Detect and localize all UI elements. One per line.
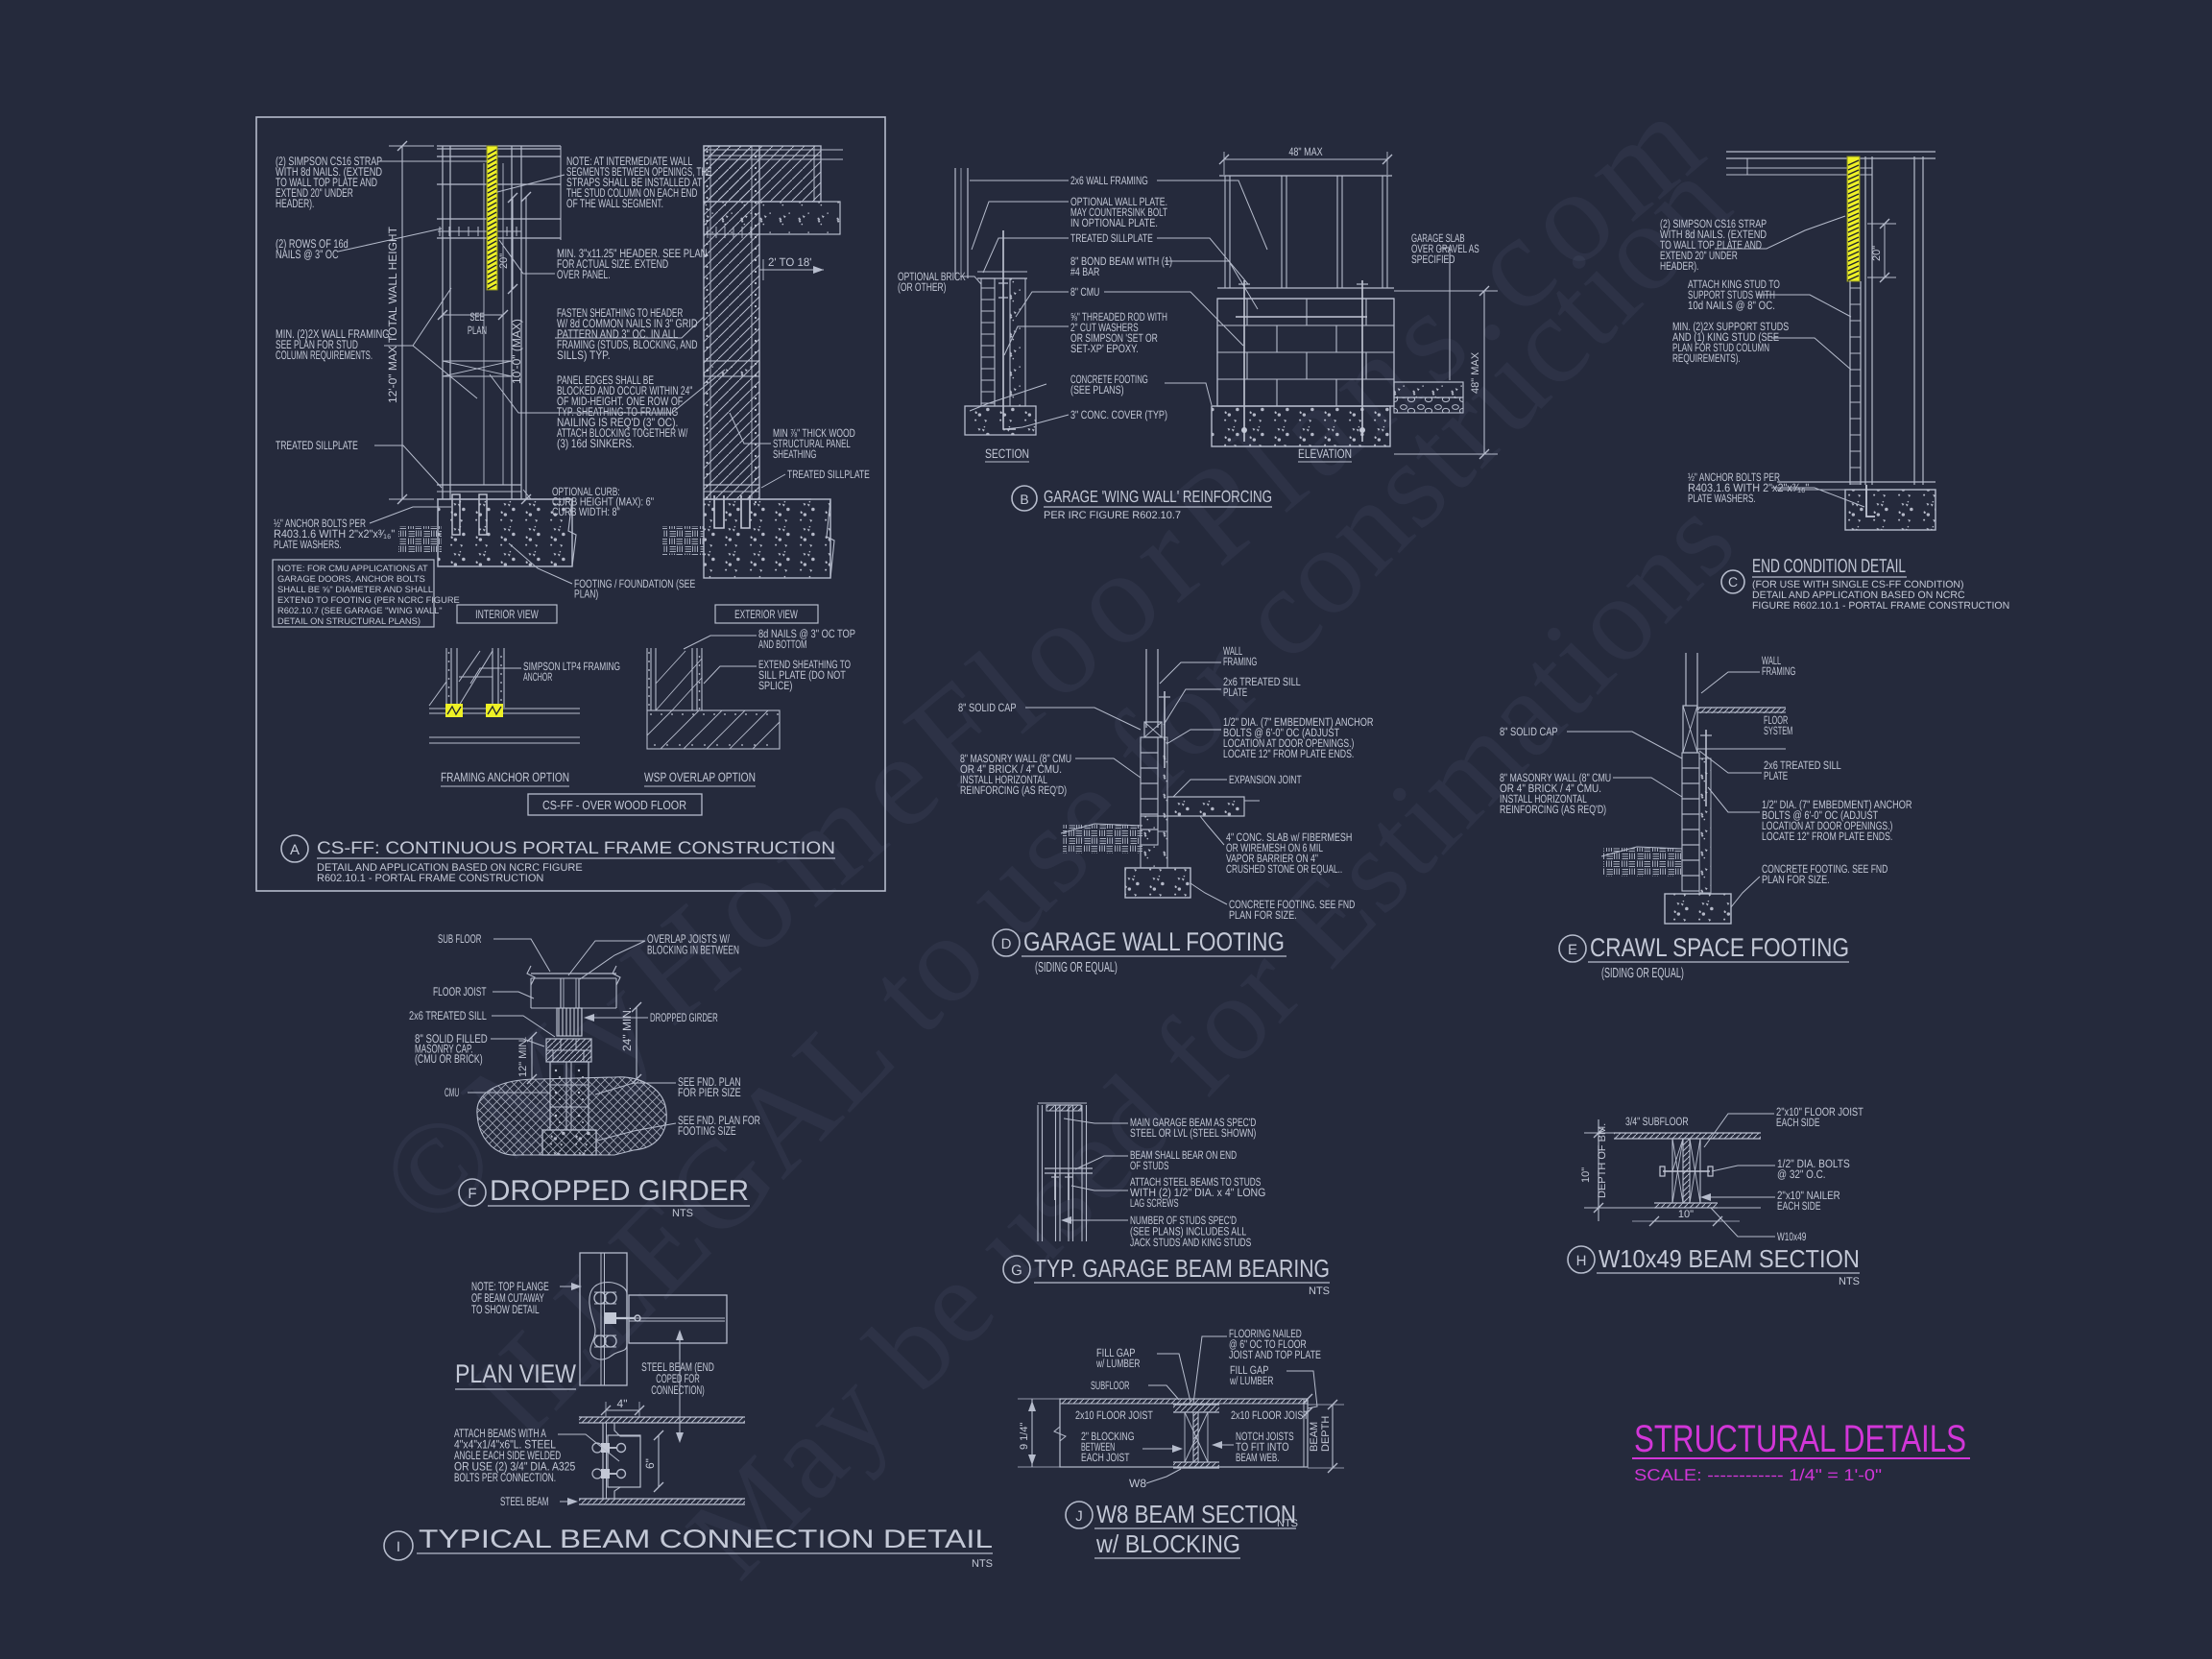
svg-text:TYPICAL BEAM CONNECTION DETAIL: TYPICAL BEAM CONNECTION DETAIL xyxy=(419,1525,993,1553)
svg-text:SEE: SEE xyxy=(469,310,484,324)
svg-text:NAILS @ 3" OC: NAILS @ 3" OC xyxy=(276,248,339,261)
svg-text:2' TO 18': 2' TO 18' xyxy=(768,255,811,269)
svg-text:BOLTS PER CONNECTION.: BOLTS PER CONNECTION. xyxy=(454,1471,556,1484)
svg-text:SPECIFIED: SPECIFIED xyxy=(1411,252,1455,266)
svg-text:BEAM: BEAM xyxy=(1309,1422,1320,1452)
svg-text:CURB WIDTH: 8": CURB WIDTH: 8" xyxy=(552,505,620,518)
svg-text:JACK STUDS AND KING STUDS: JACK STUDS AND KING STUDS xyxy=(1130,1236,1251,1249)
svg-text:PLATE WASHERS.: PLATE WASHERS. xyxy=(274,538,342,551)
svg-text:FRAMING: FRAMING xyxy=(1223,655,1257,668)
svg-text:PLAN FOR SIZE.: PLAN FOR SIZE. xyxy=(1762,873,1830,886)
svg-text:20": 20" xyxy=(498,253,510,269)
svg-text:NTS: NTS xyxy=(1309,1286,1330,1297)
svg-text:10": 10" xyxy=(1678,1209,1694,1220)
svg-text:CONNECTION): CONNECTION) xyxy=(651,1383,705,1397)
svg-text:SHALL BE ⅝" DIAMETER AND SHALL: SHALL BE ⅝" DIAMETER AND SHALL xyxy=(277,585,433,594)
svg-text:6": 6" xyxy=(643,1458,657,1469)
svg-text:PLAN: PLAN xyxy=(468,324,487,337)
svg-text:2x6 WALL FRAMING: 2x6 WALL FRAMING xyxy=(1070,174,1148,187)
svg-text:TREATED SILLPLATE: TREATED SILLPLATE xyxy=(787,468,870,481)
svg-text:TYP. GARAGE BEAM BEARING: TYP. GARAGE BEAM BEARING xyxy=(1034,1254,1330,1283)
svg-text:EXPANSION JOINT: EXPANSION JOINT xyxy=(1229,773,1302,786)
svg-text:SCALE: ------------ 1/4" = 1'-: SCALE: ------------ 1/4" = 1'-0" xyxy=(1634,1466,1882,1484)
svg-text:3/4" SUBFLOOR: 3/4" SUBFLOOR xyxy=(1625,1115,1689,1128)
svg-text:2x10 FLOOR JOIST: 2x10 FLOOR JOIST xyxy=(1075,1408,1153,1422)
svg-text:(OR OTHER): (OR OTHER) xyxy=(898,280,947,294)
svg-text:STEEL BEAM: STEEL BEAM xyxy=(500,1495,549,1508)
svg-text:D: D xyxy=(1001,936,1012,952)
svg-text:HEADER).: HEADER). xyxy=(276,197,314,210)
svg-text:REINFORCING (AS REQ'D): REINFORCING (AS REQ'D) xyxy=(960,783,1067,797)
svg-text:PLATE WASHERS.: PLATE WASHERS. xyxy=(1688,492,1756,505)
svg-text:12" MIN.: 12" MIN. xyxy=(517,1037,529,1077)
svg-text:10'-0" (MAX): 10'-0" (MAX) xyxy=(510,319,523,384)
svg-text:2x6 TREATED SILL: 2x6 TREATED SILL xyxy=(409,1009,487,1022)
svg-text:STEEL OR LVL (STEEL SHOWN): STEEL OR LVL (STEEL SHOWN) xyxy=(1130,1126,1256,1140)
svg-text:DEPTH OF BM.: DEPTH OF BM. xyxy=(1597,1123,1608,1198)
svg-text:SECTION: SECTION xyxy=(985,446,1029,461)
svg-text:CS-FF: CONTINUOUS PORTAL FRAME: CS-FF: CONTINUOUS PORTAL FRAME CONSTRUCT… xyxy=(317,838,835,857)
svg-text:DROPPED GIRDER: DROPPED GIRDER xyxy=(650,1011,718,1024)
svg-text:REINFORCING (AS REQ'D): REINFORCING (AS REQ'D) xyxy=(1500,803,1606,816)
svg-text:AND BOTTOM: AND BOTTOM xyxy=(758,637,807,651)
svg-text:SHEATHING: SHEATHING xyxy=(773,447,816,461)
svg-text:4": 4" xyxy=(617,1397,628,1410)
svg-text:10": 10" xyxy=(1580,1167,1592,1183)
svg-text:NTS: NTS xyxy=(1277,1518,1298,1529)
svg-text:8" SOLID CAP: 8" SOLID CAP xyxy=(1500,725,1558,738)
svg-text:COLUMN REQUIREMENTS.: COLUMN REQUIREMENTS. xyxy=(276,349,373,362)
svg-text:TREATED SILLPLATE: TREATED SILLPLATE xyxy=(1070,231,1153,245)
svg-text:GARAGE DOORS, ANCHOR BOLTS: GARAGE DOORS, ANCHOR BOLTS xyxy=(277,574,425,584)
svg-text:FOOTING SIZE: FOOTING SIZE xyxy=(678,1124,736,1138)
svg-text:OVER PANEL.: OVER PANEL. xyxy=(557,268,611,281)
svg-text:8" CMU: 8" CMU xyxy=(1070,285,1099,299)
svg-text:CRAWL SPACE FOOTING: CRAWL SPACE FOOTING xyxy=(1590,933,1849,962)
svg-text:CS-FF - OVER WOOD FLOOR: CS-FF - OVER WOOD FLOOR xyxy=(542,798,686,812)
svg-text:PLATE: PLATE xyxy=(1223,685,1247,699)
svg-text:w/ BLOCKING: w/ BLOCKING xyxy=(1095,1529,1240,1558)
svg-text:(SIDING OR EQUAL): (SIDING OR EQUAL) xyxy=(1601,966,1684,981)
svg-text:w/ LUMBER: w/ LUMBER xyxy=(1229,1374,1273,1387)
svg-text:BLOCKING IN BETWEEN: BLOCKING IN BETWEEN xyxy=(647,944,739,957)
svg-text:EXTEND TO FOOTING (PER NCRC FI: EXTEND TO FOOTING (PER NCRC FIGURE xyxy=(277,595,460,605)
svg-text:OF STUDS: OF STUDS xyxy=(1130,1159,1168,1172)
svg-text:#4 BAR: #4 BAR xyxy=(1070,265,1100,278)
svg-text:TO SHOW DETAIL: TO SHOW DETAIL xyxy=(471,1303,540,1316)
svg-text:48" MAX: 48" MAX xyxy=(1470,351,1481,394)
svg-text:H: H xyxy=(1576,1253,1587,1269)
svg-text:IN OPTIONAL PLATE.: IN OPTIONAL PLATE. xyxy=(1070,216,1158,229)
svg-text:FIGURE R602.10.1 - PORTAL FRAM: FIGURE R602.10.1 - PORTAL FRAME CONSTRUC… xyxy=(1752,600,2009,612)
svg-text:48" MAX: 48" MAX xyxy=(1288,145,1322,158)
svg-text:END CONDITION DETAIL: END CONDITION DETAIL xyxy=(1752,556,1906,577)
svg-text:12'-0" MAX TOTAL WALL HEIGHT: 12'-0" MAX TOTAL WALL HEIGHT xyxy=(386,226,399,403)
svg-text:NTS: NTS xyxy=(1839,1276,1860,1287)
svg-text:LOCATE 12" FROM PLATE ENDS.: LOCATE 12" FROM PLATE ENDS. xyxy=(1762,829,1892,843)
svg-text:PLAN FOR SIZE.: PLAN FOR SIZE. xyxy=(1229,908,1297,922)
svg-text:NOTE: FOR CMU APPLICATIONS AT: NOTE: FOR CMU APPLICATIONS AT xyxy=(277,564,428,573)
svg-text:ELEVATION: ELEVATION xyxy=(1298,446,1352,461)
svg-text:FOR PIER SIZE: FOR PIER SIZE xyxy=(678,1086,741,1099)
svg-text:w/ LUMBER: w/ LUMBER xyxy=(1095,1357,1140,1370)
svg-text:DEPTH: DEPTH xyxy=(1320,1416,1332,1452)
svg-text:SPLICE): SPLICE) xyxy=(758,679,792,692)
svg-text:SUBFLOOR: SUBFLOOR xyxy=(1091,1379,1130,1392)
svg-text:(SIDING OR EQUAL): (SIDING OR EQUAL) xyxy=(1035,960,1118,975)
svg-text:STRUCTURAL DETAILS: STRUCTURAL DETAILS xyxy=(1634,1418,1966,1460)
svg-text:W8: W8 xyxy=(1129,1477,1146,1490)
svg-text:W10x49: W10x49 xyxy=(1777,1230,1807,1243)
svg-text:20": 20" xyxy=(1871,246,1883,261)
svg-text:CRUSHED STONE OR EQUAL..: CRUSHED STONE OR EQUAL.. xyxy=(1226,862,1342,876)
svg-text:9 1/4": 9 1/4" xyxy=(1019,1423,1030,1450)
svg-text:3" CONC. COVER (TYP): 3" CONC. COVER (TYP) xyxy=(1070,408,1167,421)
svg-text:I: I xyxy=(397,1539,400,1555)
svg-text:R602.10.1 - PORTAL FRAME CONST: R602.10.1 - PORTAL FRAME CONSTRUCTION xyxy=(317,873,543,884)
svg-text:A: A xyxy=(290,842,300,858)
svg-text:24" MIN.: 24" MIN. xyxy=(620,1007,634,1051)
svg-text:F: F xyxy=(468,1186,476,1202)
svg-text:PLAN VIEW: PLAN VIEW xyxy=(455,1359,576,1388)
svg-text:INTERIOR VIEW: INTERIOR VIEW xyxy=(475,608,539,621)
svg-text:SUB FLOOR: SUB FLOOR xyxy=(438,932,481,946)
svg-text:C: C xyxy=(1728,574,1738,589)
svg-text:NTS: NTS xyxy=(972,1558,993,1570)
svg-text:(SEE PLANS): (SEE PLANS) xyxy=(1070,383,1124,397)
svg-text:DROPPED GIRDER: DROPPED GIRDER xyxy=(490,1175,749,1207)
svg-text:SYSTEM: SYSTEM xyxy=(1764,724,1792,737)
svg-text:NTS: NTS xyxy=(672,1208,693,1219)
svg-text:B: B xyxy=(1020,492,1028,507)
svg-text:GARAGE 'WING WALL' REINFORCING: GARAGE 'WING WALL' REINFORCING xyxy=(1044,487,1272,506)
svg-text:WSP OVERLAP OPTION: WSP OVERLAP OPTION xyxy=(644,770,756,784)
svg-text:FLOOR JOIST: FLOOR JOIST xyxy=(433,985,487,998)
svg-text:REQUIREMENTS).: REQUIREMENTS). xyxy=(1672,351,1741,365)
svg-text:LAG SCREWS: LAG SCREWS xyxy=(1130,1196,1179,1210)
svg-text:G: G xyxy=(1011,1262,1022,1279)
svg-text:W8 BEAM SECTION: W8 BEAM SECTION xyxy=(1096,1500,1296,1528)
svg-text:SET-XP' EPOXY.: SET-XP' EPOXY. xyxy=(1070,342,1139,355)
svg-text:DETAIL ON STRUCTURAL PLANS): DETAIL ON STRUCTURAL PLANS) xyxy=(277,616,421,626)
svg-text:PLATE: PLATE xyxy=(1764,769,1788,782)
svg-text:2x10 FLOOR JOIST: 2x10 FLOOR JOIST xyxy=(1231,1408,1309,1422)
svg-text:PLAN): PLAN) xyxy=(574,588,598,601)
svg-text:GARAGE WALL FOOTING: GARAGE WALL FOOTING xyxy=(1023,927,1285,956)
svg-text:EACH SIDE: EACH SIDE xyxy=(1777,1199,1820,1213)
svg-text:OF THE WALL SEGMENT.: OF THE WALL SEGMENT. xyxy=(566,197,663,210)
svg-text:8" SOLID CAP: 8" SOLID CAP xyxy=(958,701,1017,714)
svg-text:LOCATE 12" FROM PLATE ENDS.: LOCATE 12" FROM PLATE ENDS. xyxy=(1223,747,1354,760)
svg-text:10d NAILS @ 8" OC.: 10d NAILS @ 8" OC. xyxy=(1688,299,1775,312)
svg-text:FRAMING ANCHOR OPTION: FRAMING ANCHOR OPTION xyxy=(441,770,569,784)
svg-text:JOIST AND TOP PLATE: JOIST AND TOP PLATE xyxy=(1229,1348,1321,1361)
svg-text:E: E xyxy=(1568,942,1577,958)
svg-text:EACH SIDE: EACH SIDE xyxy=(1776,1116,1819,1129)
svg-text:(3) 16d SINKERS.: (3) 16d SINKERS. xyxy=(557,437,635,450)
svg-text:(CMU OR BRICK): (CMU OR BRICK) xyxy=(415,1052,483,1066)
svg-text:PER IRC FIGURE R602.10.7: PER IRC FIGURE R602.10.7 xyxy=(1044,510,1181,521)
svg-text:TREATED SILLPLATE: TREATED SILLPLATE xyxy=(276,439,358,452)
svg-text:J: J xyxy=(1075,1508,1083,1525)
svg-text:SILLS) TYP.: SILLS) TYP. xyxy=(557,349,611,362)
svg-text:CMU: CMU xyxy=(445,1086,459,1099)
svg-text:@ 32" O.C.: @ 32" O.C. xyxy=(1777,1167,1826,1181)
svg-text:R602.10.7 (SEE GARAGE "WING WA: R602.10.7 (SEE GARAGE "WING WALL" xyxy=(277,606,443,615)
svg-text:BEAM WEB.: BEAM WEB. xyxy=(1236,1451,1279,1464)
svg-text:ANCHOR: ANCHOR xyxy=(523,670,552,684)
svg-text:EACH JOIST: EACH JOIST xyxy=(1081,1451,1130,1464)
svg-text:HEADER).: HEADER). xyxy=(1660,259,1698,273)
svg-text:EXTERIOR VIEW: EXTERIOR VIEW xyxy=(734,608,798,621)
svg-text:W10x49 BEAM SECTION: W10x49 BEAM SECTION xyxy=(1599,1244,1860,1273)
svg-text:FRAMING: FRAMING xyxy=(1762,664,1795,678)
